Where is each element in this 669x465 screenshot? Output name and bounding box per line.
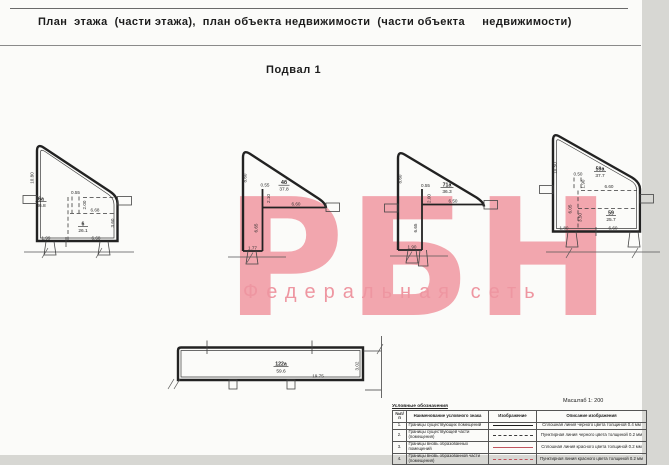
room-area: 37.8 bbox=[279, 187, 289, 193]
dimension-label: 0.55 bbox=[421, 183, 430, 188]
dimension-label: 6.60 bbox=[609, 226, 618, 231]
legend-row: 1. Границы существующих помещений Сплошн… bbox=[393, 422, 647, 429]
legend-header-row: №п/п Наименование условного знака Изобра… bbox=[393, 411, 647, 423]
dimension-label: 1.80 bbox=[560, 226, 569, 231]
legend-row-name: Границы вновь образованной части (помеще… bbox=[407, 453, 489, 465]
room-shape-122a: 19.75 3.02 122а 59.6 bbox=[168, 336, 383, 398]
legend-row: 2. Границы существующей части (помещения… bbox=[393, 429, 647, 441]
dimension-label: 1.90 bbox=[408, 245, 417, 250]
dimension-label: 6.68 bbox=[91, 208, 100, 213]
legend-row-num: 1. bbox=[393, 422, 407, 429]
dimension-label: 10.80 bbox=[30, 172, 35, 184]
legend-row-desc: Сплошная линия красного цвета толщиной 0… bbox=[537, 441, 647, 453]
room-area: 25.7 bbox=[606, 217, 616, 223]
legend-row-desc: Пунктирная линия красного цвета толщиной… bbox=[537, 453, 647, 465]
legend-row-name: Границы вновь образованных помещений bbox=[407, 441, 489, 453]
dimension-label: 3.02 bbox=[355, 361, 360, 370]
room-shape-71a: 8.60 0.55 2.00 6.50 6.65 1.90 71а 36.3 bbox=[385, 153, 498, 266]
legend-line-sample bbox=[493, 459, 533, 460]
dimension-label: 6.05 bbox=[568, 204, 573, 213]
dimension-label: 1.99 bbox=[42, 236, 51, 241]
floor-label: Подвал 1 bbox=[266, 64, 321, 76]
legend-row-num: 2. bbox=[393, 429, 407, 441]
dimension-label: 1.77 bbox=[248, 246, 257, 251]
dimension-label: 0.55 bbox=[71, 190, 80, 195]
legend-heading: Условные обозначения bbox=[392, 404, 647, 409]
legend-row-num: 3. bbox=[393, 441, 407, 453]
dimension-label: 2.00 bbox=[427, 194, 432, 203]
dimension-label: 10.50 bbox=[553, 162, 558, 174]
room-area: 37.7 bbox=[595, 173, 605, 179]
room-area: 59.6 bbox=[276, 369, 286, 375]
room-shape-59: 10.50 0.50 1.90 6.60 6.05 3.50 1.80 6.60… bbox=[540, 135, 661, 258]
legend-header: Наименование условного знака bbox=[407, 411, 489, 423]
legend-line-sample bbox=[493, 425, 533, 426]
dimension-label: 3.50 bbox=[578, 213, 583, 222]
dimension-label: 6.60 bbox=[605, 184, 614, 189]
legend-row-name: Границы существующей части (помещения) bbox=[407, 429, 489, 441]
dimension-label: 6.68 bbox=[92, 236, 101, 241]
dimension-label: 0.55 bbox=[261, 183, 270, 188]
dimension-label: 0.50 bbox=[574, 172, 583, 177]
dimension-label: 8.60 bbox=[243, 173, 248, 182]
legend-table: №п/п Наименование условного знака Изобра… bbox=[392, 410, 647, 465]
legend-header: Описание изображения bbox=[537, 411, 647, 423]
legend-row-desc: Сплошная линия черного цвета толщиной 0.… bbox=[537, 422, 647, 429]
room-area: 36.3 bbox=[442, 189, 452, 195]
dimension-label: 2.10 bbox=[266, 194, 271, 203]
dimension-label: 6.65 bbox=[413, 223, 418, 232]
legend-row-num: 4. bbox=[393, 453, 407, 465]
legend-row: 4. Границы вновь образованной части (пом… bbox=[393, 453, 647, 465]
legend-row-desc: Пунктирная линия черного цвета толщиной … bbox=[537, 429, 647, 441]
legend-header: №п/п bbox=[393, 411, 407, 423]
dimension-label: 2.00 bbox=[82, 200, 87, 209]
legend-header: Изображение bbox=[489, 411, 537, 423]
room-shape-6: 10.80 0.55 2.00 6.68 3.60 1.99 6.68 6а 3… bbox=[23, 146, 134, 258]
legend: Условные обозначения №п/п Наименование у… bbox=[392, 404, 647, 465]
dimension-label: 1.90 bbox=[581, 179, 586, 188]
dimension-label: 6.65 bbox=[254, 223, 259, 232]
legend-line-sample bbox=[493, 447, 533, 448]
dimension-label: 6.60 bbox=[292, 202, 301, 207]
page-title: План этажа (части этажа), план объекта н… bbox=[38, 16, 618, 28]
dimension-label: 3.60 bbox=[110, 218, 115, 227]
legend-row-name: Границы существующих помещений bbox=[407, 422, 489, 429]
floor-plan-drawing: 10.80 0.55 2.00 6.68 3.60 1.99 6.68 6а 3… bbox=[0, 0, 669, 465]
dimension-label: 6.50 bbox=[449, 199, 458, 204]
dimension-label: 8.60 bbox=[398, 174, 403, 183]
dimension-label: 19.75 bbox=[312, 374, 324, 379]
room-shape-4b: 8.60 0.55 2.10 6.60 6.65 1.77 4б 37.8 bbox=[228, 152, 340, 264]
room-area: 36.8 bbox=[36, 203, 46, 209]
room-area: 26.1 bbox=[78, 228, 88, 234]
legend-row: 3. Границы вновь образованных помещений … bbox=[393, 441, 647, 453]
legend-line-sample bbox=[493, 435, 533, 436]
